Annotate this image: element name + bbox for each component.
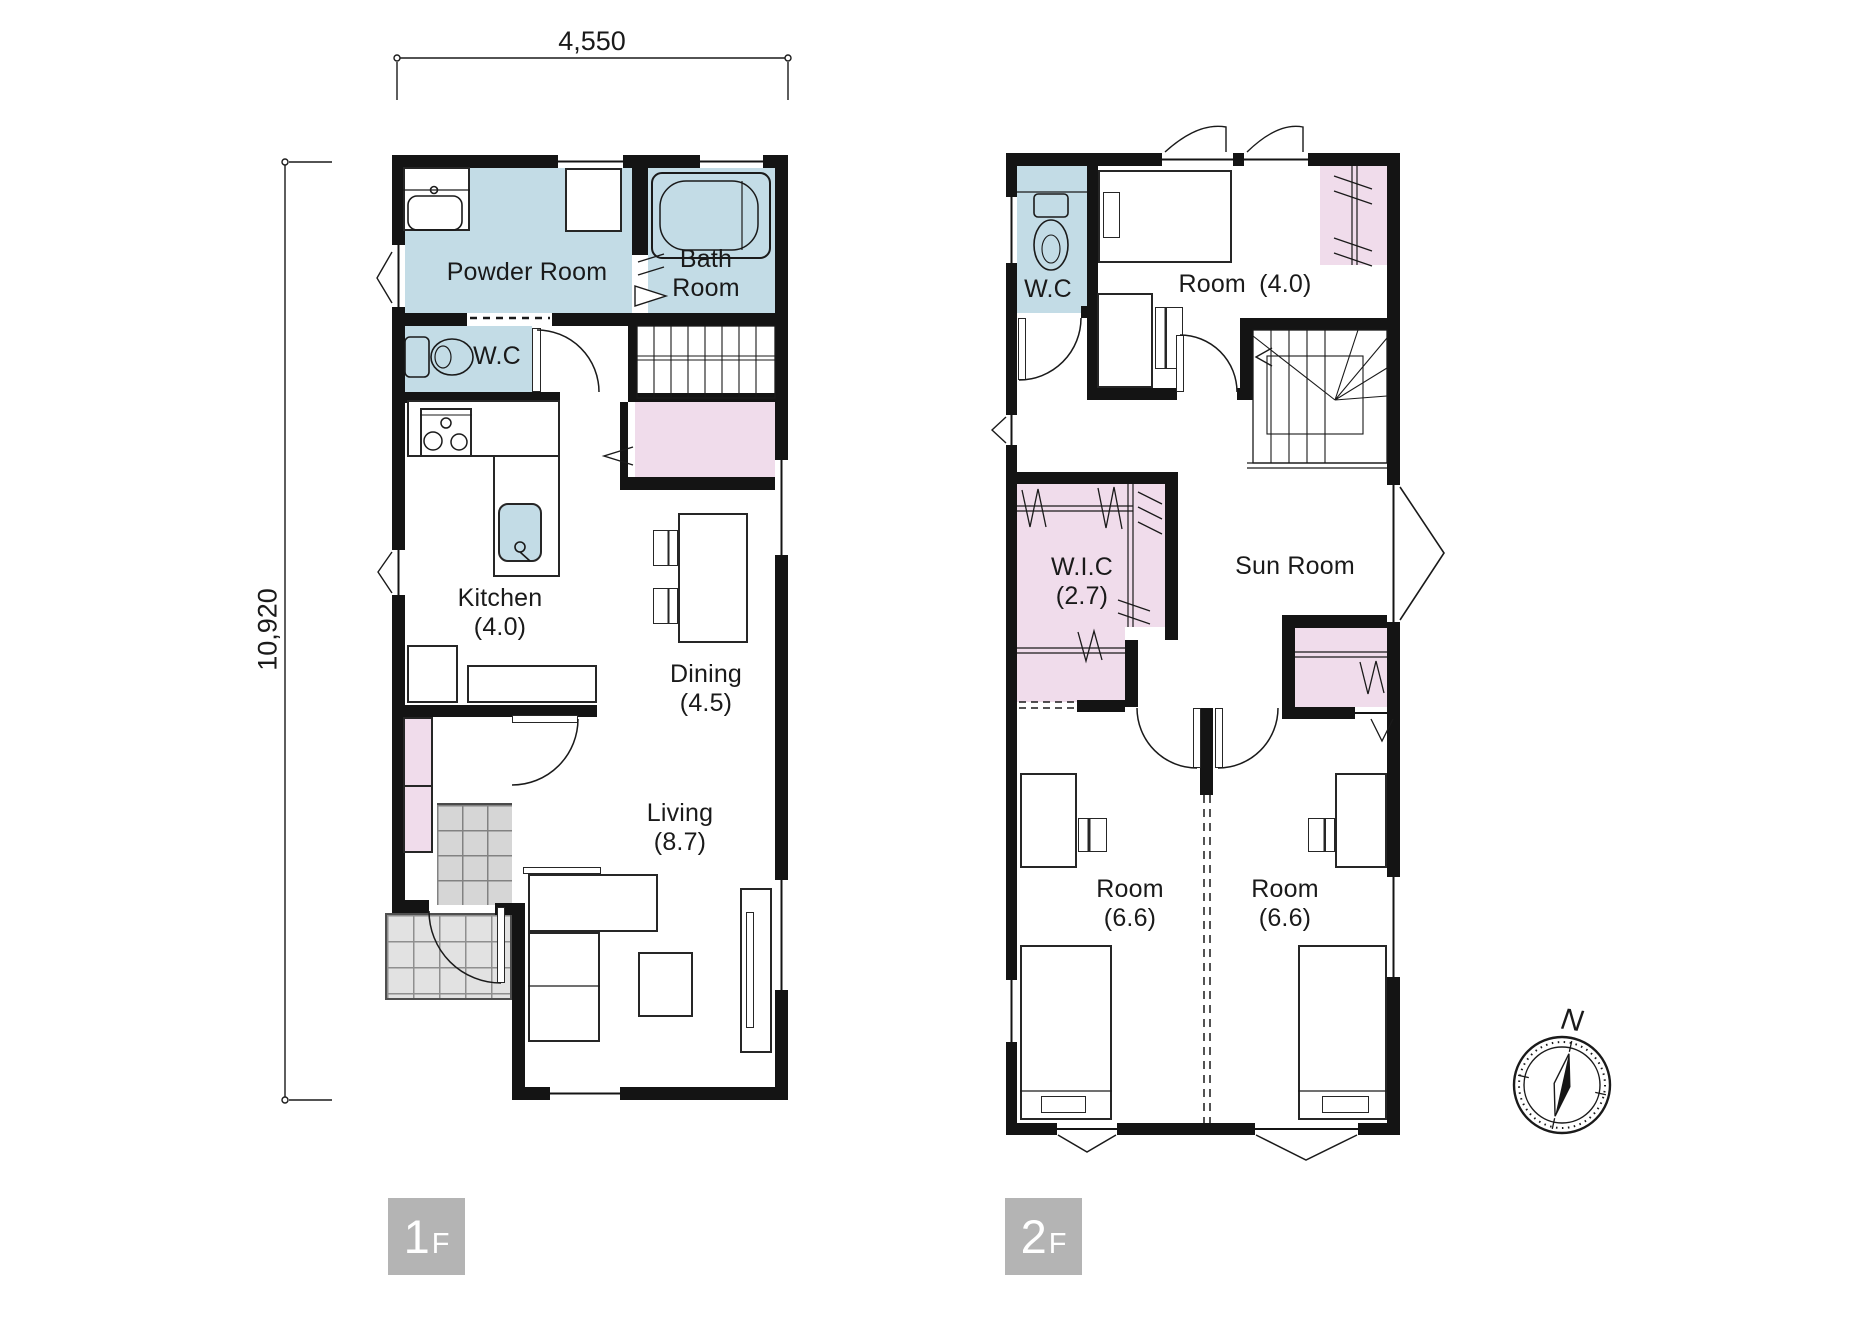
label-wc-1f: W.C <box>447 342 547 371</box>
bed <box>1298 945 1387 1120</box>
label-line: Room <box>656 274 756 303</box>
wall <box>392 900 429 913</box>
wall <box>628 393 775 402</box>
casement-icon <box>377 252 392 303</box>
sliding-door <box>467 313 552 326</box>
badge-number: 1 <box>404 1198 430 1275</box>
tv <box>746 912 754 1028</box>
label-line: Bath <box>656 245 756 274</box>
window <box>1244 153 1308 166</box>
sofa-back <box>523 867 601 874</box>
wall <box>1077 700 1125 712</box>
wall <box>392 313 775 326</box>
window <box>558 155 623 168</box>
label-line: Living <box>620 799 740 828</box>
floor-badge-2f: 2F <box>1005 1198 1082 1275</box>
wall <box>1282 615 1400 628</box>
desk <box>1335 773 1387 868</box>
label-room-left: Room (6.6) <box>1070 875 1190 932</box>
floor-badge-1f: 1F <box>388 1198 465 1275</box>
label-line: (4.0) <box>430 613 570 642</box>
wall <box>1200 708 1213 795</box>
closet-door-marker <box>604 447 633 465</box>
sofa <box>528 932 600 1042</box>
desk <box>1020 773 1077 868</box>
window <box>392 245 405 307</box>
pillow <box>1103 192 1120 238</box>
kitchen-island <box>467 665 597 703</box>
entry-door-leaf <box>497 907 505 983</box>
wall <box>1165 484 1178 640</box>
wall <box>620 402 628 477</box>
dining-chair <box>653 530 678 566</box>
pillow <box>1041 1096 1086 1113</box>
vanity-sink <box>403 167 470 231</box>
door-arc <box>1019 318 1081 380</box>
tv-board <box>740 888 772 1053</box>
label-dining: Dining (4.5) <box>646 660 766 717</box>
badge-number: 2 <box>1021 1198 1047 1275</box>
kitchen-island <box>407 645 458 703</box>
wall <box>512 903 525 1100</box>
entrance-porch-tiles <box>385 913 512 1000</box>
dining-chair <box>653 588 678 624</box>
closet-under-stairs <box>635 402 775 477</box>
dining-table <box>678 513 748 643</box>
window <box>1255 1123 1358 1135</box>
window <box>1006 415 1017 445</box>
label-bath-room: Bath Room <box>656 245 756 302</box>
wall <box>1006 306 1017 318</box>
chair <box>1078 818 1107 852</box>
wall <box>628 326 637 398</box>
stairs-1f <box>637 326 775 398</box>
door-leaf <box>1215 708 1223 768</box>
wall <box>1282 615 1295 707</box>
label-line: W.I.C <box>1022 553 1142 582</box>
washing-machine <box>565 168 622 232</box>
window <box>1387 877 1400 977</box>
door-arc <box>1218 708 1278 768</box>
window <box>700 155 763 168</box>
chair <box>1308 818 1335 852</box>
compass-north-label: N <box>1550 1001 1594 1040</box>
shoe-cabinet <box>403 717 433 853</box>
label-line: (6.6) <box>1070 904 1190 933</box>
door-leaf <box>1176 335 1184 392</box>
label-line: (8.7) <box>620 828 740 857</box>
dimension-width-label: 4,550 <box>472 26 712 57</box>
label-line: Room <box>1070 875 1190 904</box>
label-line: Kitchen <box>430 584 570 613</box>
casement-icon <box>992 417 1006 443</box>
wic-opening-dashed <box>1019 702 1077 708</box>
label-kitchen: Kitchen (4.0) <box>430 584 570 641</box>
bay-window-icon <box>1400 487 1444 620</box>
kitchen-sink <box>498 503 542 562</box>
label-line: (4.5) <box>646 689 766 718</box>
stove <box>420 408 472 457</box>
closet-sunroom <box>1295 628 1387 707</box>
floor-plan-canvas: 4,550 10,920 Powder Room Bath Room W.C K… <box>0 0 1852 1320</box>
badge-suffix: F <box>432 1206 450 1283</box>
window <box>775 880 788 990</box>
label-line: Dining <box>646 660 766 689</box>
label-line: Room <box>1225 875 1345 904</box>
window <box>1006 980 1017 1042</box>
badge-suffix: F <box>1049 1206 1067 1283</box>
wall <box>1125 640 1138 707</box>
label-room-right: Room (6.6) <box>1225 875 1345 932</box>
door-arc <box>512 719 578 785</box>
window <box>1355 707 1387 719</box>
label-line: (2.7) <box>1022 582 1142 611</box>
wic-lower <box>1017 627 1125 702</box>
partition-dashed <box>1204 795 1210 1123</box>
genkan-tiles <box>437 803 512 905</box>
coffee-table <box>638 952 693 1017</box>
label-wic: W.I.C (2.7) <box>1022 553 1142 610</box>
window <box>1006 197 1017 263</box>
sofa <box>528 874 658 932</box>
door-arc <box>1180 335 1237 392</box>
closet-room4 <box>1320 166 1387 265</box>
wall <box>632 155 648 255</box>
door-arc <box>1137 708 1197 768</box>
window <box>550 1087 620 1100</box>
wall <box>1253 318 1400 330</box>
window <box>775 460 788 555</box>
casement-icon <box>1165 126 1226 152</box>
wall <box>1081 306 1098 318</box>
window <box>392 550 405 595</box>
pillow <box>1322 1096 1369 1113</box>
wall <box>1387 153 1400 1135</box>
dimension-height-label: 10,920 <box>253 520 284 740</box>
divider <box>405 785 431 787</box>
stairs-2f <box>1247 330 1387 468</box>
casement-icon <box>378 552 392 593</box>
window <box>1057 1123 1117 1135</box>
label-room4: Room (4.0) <box>1145 270 1345 299</box>
label-line: (6.6) <box>1225 904 1345 933</box>
door-leaf <box>1193 708 1201 768</box>
bed <box>1020 945 1112 1120</box>
wall <box>1015 472 1178 484</box>
awning-window-icon <box>1058 1135 1116 1152</box>
label-powder-room: Powder Room <box>427 258 627 287</box>
desk <box>1097 293 1153 388</box>
label-living: Living (8.7) <box>620 799 740 856</box>
compass-icon <box>1508 1031 1615 1138</box>
casement-icon <box>1247 126 1303 152</box>
label-wc-2f: W.C <box>998 275 1098 304</box>
wall <box>1087 388 1177 400</box>
window <box>1162 153 1233 166</box>
awning-window-icon <box>1256 1135 1357 1160</box>
door-leaf <box>1018 318 1026 380</box>
wall <box>1240 318 1253 400</box>
wall <box>620 477 775 490</box>
label-sun-room: Sun Room <box>1195 552 1395 581</box>
door-leaf <box>512 715 578 723</box>
